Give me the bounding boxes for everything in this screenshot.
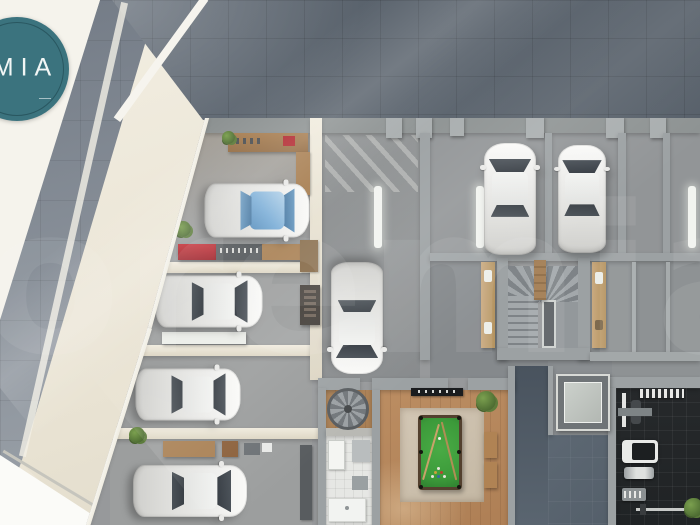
car-1-blue-glass <box>205 183 310 237</box>
car-top-view <box>156 275 263 327</box>
car-top-view <box>331 262 383 374</box>
car-roof <box>184 473 217 509</box>
pool-ball <box>431 475 434 478</box>
floor-light-strip <box>476 186 484 248</box>
pool-ball <box>437 475 440 478</box>
potted-plant <box>129 427 145 443</box>
car-rear-window <box>172 472 185 511</box>
pool-ball <box>434 471 437 474</box>
car-roof <box>339 312 375 344</box>
cue-ball <box>438 437 441 440</box>
car-2-white <box>156 275 263 327</box>
pool-ball <box>443 475 446 478</box>
car-mirror-left <box>284 179 289 185</box>
pool-pocket <box>457 416 461 420</box>
car-mirror-left <box>381 347 387 352</box>
car-6-white <box>484 143 536 255</box>
car-top-view <box>558 145 606 253</box>
potted-plant <box>684 498 700 517</box>
pool-ball <box>437 467 440 470</box>
car-top-view <box>484 143 536 255</box>
pool-table-felt <box>421 418 459 487</box>
car-rear-window <box>564 204 600 216</box>
pool-pocket <box>457 450 461 454</box>
car-roof <box>183 376 213 412</box>
car-roof <box>204 283 235 319</box>
car-rear-window <box>171 375 183 414</box>
pool-pocket <box>457 485 461 489</box>
floor-light-strip <box>374 186 382 248</box>
potted-plant <box>222 131 235 144</box>
pool-pocket <box>419 485 423 489</box>
car-roof <box>492 172 528 204</box>
car-top-view <box>133 465 247 517</box>
floor-light-strip <box>688 186 696 248</box>
potted-plant <box>476 391 496 411</box>
car-mirror-right <box>284 235 289 241</box>
car-mirror-right <box>236 325 241 331</box>
floor-plan-render: oremia MIA <box>0 0 700 525</box>
car-roof <box>565 173 599 204</box>
spiral-staircase <box>327 388 369 430</box>
pool-pocket <box>419 416 423 420</box>
car-4-white <box>133 465 247 517</box>
car-mirror-left <box>219 461 224 467</box>
pool-table <box>418 415 462 490</box>
car-top-view <box>205 183 310 237</box>
brand-logo-underline <box>39 98 51 99</box>
car-7-white <box>558 145 606 253</box>
pool-ball <box>440 471 443 474</box>
brand-logo-text: MIA <box>0 53 58 82</box>
pool-pocket <box>419 450 423 454</box>
car-5-white <box>331 262 383 374</box>
car-mirror-left <box>236 271 241 277</box>
car-mirror-right <box>534 165 540 170</box>
car-mirror-left <box>215 364 220 370</box>
car-mirror-right <box>327 347 333 352</box>
car-rear-window <box>338 300 377 312</box>
car-roof <box>250 191 285 229</box>
car-rear-window <box>240 190 252 230</box>
car-top-view <box>136 368 241 420</box>
car-mirror-right <box>219 515 224 521</box>
car-3-white <box>136 368 241 420</box>
car-mirror-right <box>604 167 610 172</box>
car-mirror-right <box>215 418 220 424</box>
car-rear-window <box>192 282 204 321</box>
car-rear-window <box>491 205 530 217</box>
